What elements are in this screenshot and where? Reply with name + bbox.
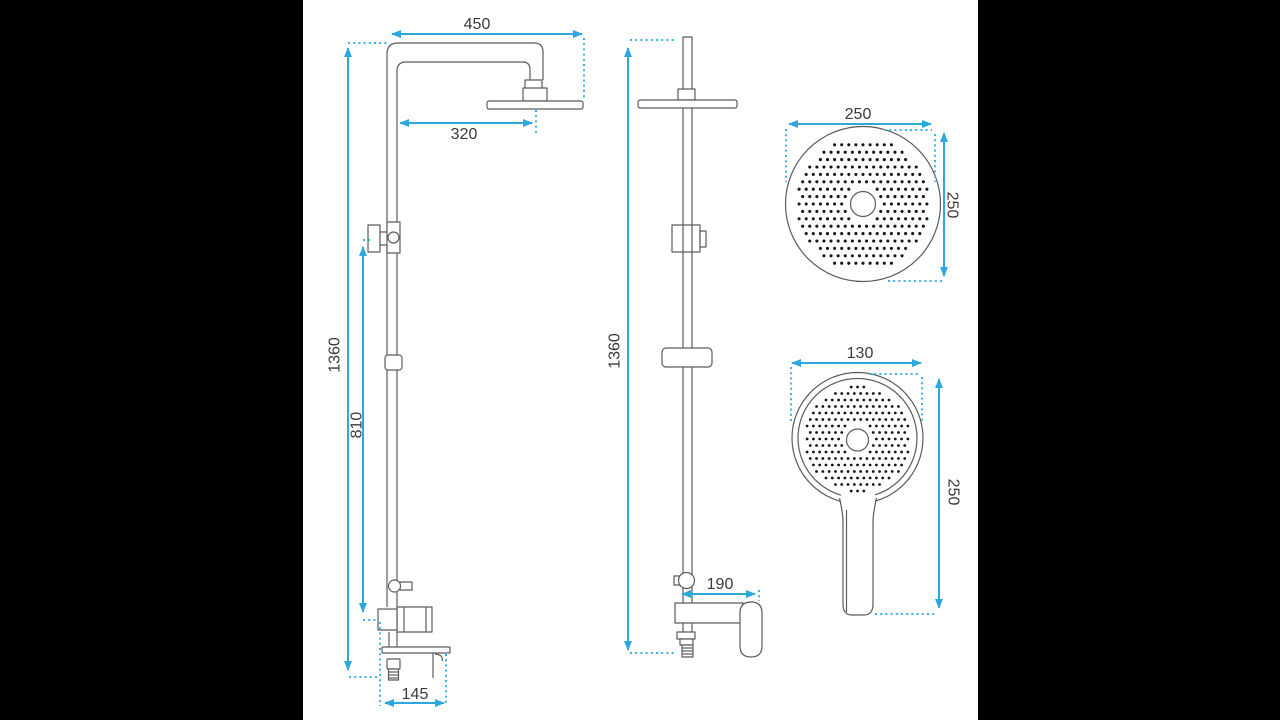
mixer-body [397, 607, 432, 632]
dim-810: 810 [349, 240, 377, 620]
overhead-shower-face: 250 250 [786, 106, 961, 282]
side-view: 450 320 1360 810 [327, 16, 584, 706]
front-flange2 [680, 639, 693, 645]
slider-clamp [385, 355, 402, 370]
diverter-knob [679, 573, 695, 589]
shelf [382, 647, 450, 653]
dim-label-250h: 250 [943, 192, 960, 219]
drawing-panel: 450 320 1360 810 [303, 0, 978, 720]
dim-label-1360-side: 1360 [327, 337, 344, 373]
dim-label-250l: 250 [944, 479, 961, 506]
front-pole [683, 37, 692, 632]
dim-320: 320 [400, 110, 536, 143]
dim-label-145: 145 [402, 686, 429, 703]
inlet-flange [387, 659, 400, 669]
dim-label-190: 190 [707, 576, 734, 593]
wall-bracket-plate [368, 225, 380, 252]
hand-shower: 130 250 [791, 345, 961, 615]
screenshot-stage: 450 320 1360 810 [0, 0, 1280, 720]
front-slider-holder [662, 348, 712, 367]
spout-body [675, 603, 743, 623]
dim-label-450: 450 [464, 16, 491, 33]
front-bracket [672, 225, 700, 252]
hand-face-hub [847, 429, 869, 451]
technical-drawing: 450 320 1360 810 [303, 0, 978, 720]
front-head-collar [678, 89, 695, 100]
dim-label-250w: 250 [845, 106, 872, 123]
outlet-cap [389, 580, 401, 592]
dim-label-1360-front: 1360 [607, 333, 624, 369]
dim-label-810: 810 [349, 412, 366, 439]
head-face-hub [851, 192, 876, 217]
head-plate-side [487, 101, 583, 109]
dim-1360-side: 1360 [327, 48, 379, 677]
spout-end [740, 602, 762, 657]
dim-label-320: 320 [451, 126, 478, 143]
outlet-stub [400, 582, 412, 590]
mixer-front-plate [378, 609, 397, 630]
shelf-hook [435, 654, 442, 661]
front-flange [677, 632, 695, 639]
dim-1360-front: 1360 [607, 40, 675, 653]
riser-arm-inner [397, 62, 530, 607]
dim-label-130: 130 [847, 345, 874, 362]
head-connector-lower [523, 88, 547, 101]
front-view: 1360 190 [607, 37, 762, 657]
front-head-plate [638, 100, 737, 108]
front-bracket-tab [700, 231, 706, 247]
dim-450: 450 [348, 16, 584, 100]
wall-bracket-knob [388, 232, 399, 243]
